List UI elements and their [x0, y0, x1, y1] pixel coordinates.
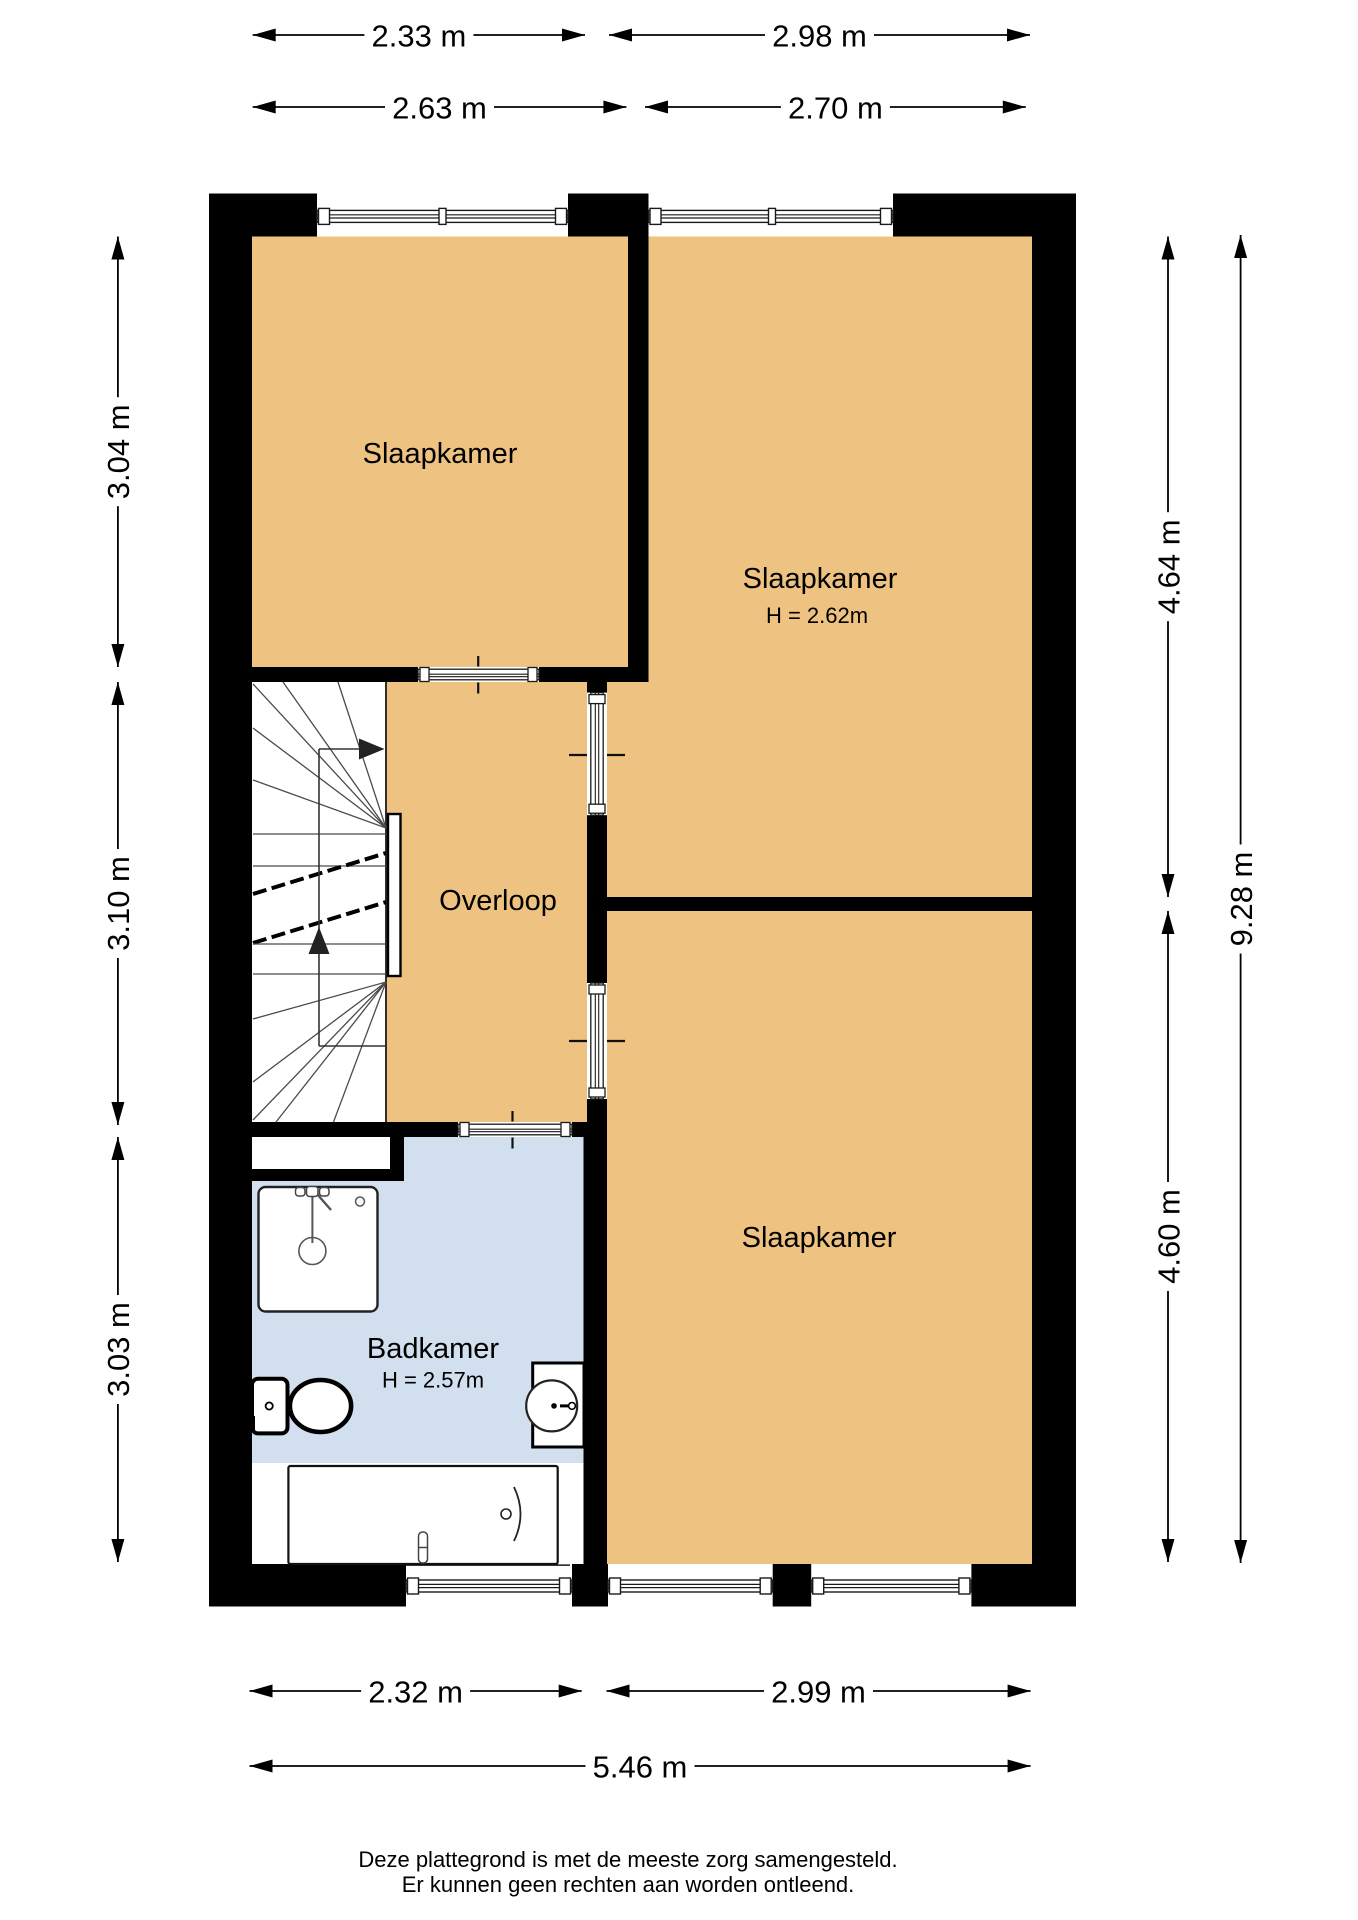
svg-text:3.04 m: 3.04 m: [101, 404, 136, 499]
svg-text:3.10 m: 3.10 m: [101, 856, 136, 951]
svg-text:H = 2.62m: H = 2.62m: [766, 603, 868, 628]
svg-text:Slaapkamer: Slaapkamer: [743, 563, 898, 595]
svg-text:H = 2.57m: H = 2.57m: [382, 1368, 484, 1393]
svg-text:9.28 m: 9.28 m: [1224, 852, 1259, 947]
svg-text:4.64 m: 4.64 m: [1151, 519, 1186, 614]
svg-text:2.98 m: 2.98 m: [772, 18, 867, 53]
svg-text:2.63 m: 2.63 m: [392, 90, 487, 125]
svg-text:2.32 m: 2.32 m: [368, 1674, 463, 1709]
svg-text:3.03 m: 3.03 m: [101, 1302, 136, 1397]
svg-text:Slaapkamer: Slaapkamer: [363, 438, 518, 470]
svg-text:2.33 m: 2.33 m: [372, 18, 467, 53]
svg-text:5.46 m: 5.46 m: [593, 1749, 688, 1784]
svg-text:Slaapkamer: Slaapkamer: [742, 1222, 897, 1254]
svg-text:Badkamer: Badkamer: [367, 1333, 500, 1365]
svg-text:Overloop: Overloop: [439, 885, 557, 917]
svg-text:2.70 m: 2.70 m: [788, 90, 883, 125]
svg-text:Er kunnen geen rechten aan wor: Er kunnen geen rechten aan worden ontlee…: [402, 1872, 855, 1897]
svg-text:2.99 m: 2.99 m: [771, 1674, 866, 1709]
svg-text:4.60 m: 4.60 m: [1151, 1189, 1186, 1284]
svg-text:Deze plattegrond is met de mee: Deze plattegrond is met de meeste zorg s…: [358, 1847, 897, 1872]
